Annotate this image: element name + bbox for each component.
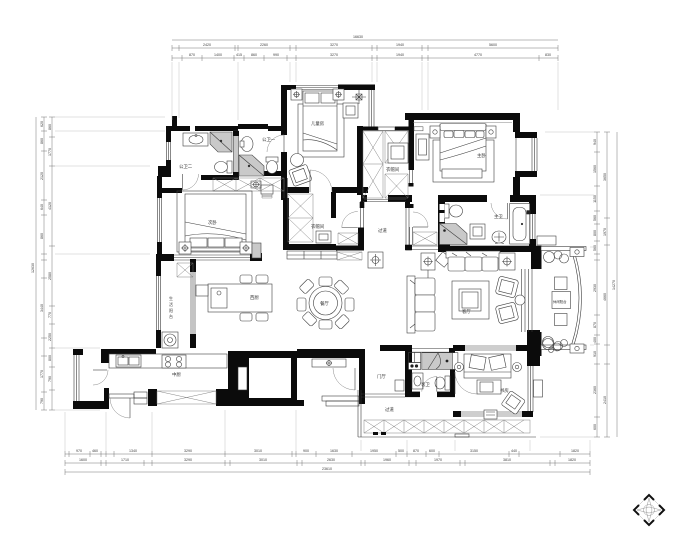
svg-text:860: 860 [40, 233, 44, 239]
svg-text:800: 800 [593, 230, 597, 236]
svg-text:1600: 1600 [79, 458, 87, 462]
svg-text:870: 870 [189, 53, 195, 57]
svg-text:1340: 1340 [129, 449, 137, 453]
svg-text:衣帽间: 衣帽间 [311, 223, 324, 230]
svg-text:990: 990 [273, 53, 279, 57]
svg-text:620: 620 [40, 121, 44, 127]
svg-text:23610: 23610 [322, 467, 332, 471]
svg-text:1970: 1970 [603, 228, 607, 236]
svg-text:830: 830 [545, 53, 551, 57]
svg-text:台: 台 [169, 313, 173, 319]
svg-text:3440: 3440 [40, 304, 44, 312]
svg-text:5600: 5600 [489, 43, 497, 47]
svg-text:1150: 1150 [593, 195, 597, 203]
svg-text:1400: 1400 [214, 53, 222, 57]
svg-text:阳: 阳 [169, 307, 173, 313]
svg-text:860: 860 [251, 53, 257, 57]
svg-text:书房: 书房 [500, 387, 509, 394]
svg-text:560: 560 [593, 245, 597, 251]
svg-text:800: 800 [48, 355, 52, 361]
svg-text:1960: 1960 [383, 458, 391, 462]
svg-text:客卫: 客卫 [421, 381, 430, 388]
svg-text:1950: 1950 [370, 449, 378, 453]
svg-text:910: 910 [593, 351, 597, 357]
svg-text:公卫二: 公卫二 [179, 164, 193, 169]
svg-text:门厅: 门厅 [377, 373, 386, 380]
svg-text:900: 900 [303, 449, 309, 453]
svg-text:2930: 2930 [593, 284, 597, 292]
svg-text:940: 940 [593, 139, 597, 145]
svg-text:1970: 1970 [434, 458, 442, 462]
svg-text:1940: 1940 [396, 53, 404, 57]
svg-text:600: 600 [429, 449, 435, 453]
svg-text:500: 500 [398, 449, 404, 453]
svg-text:3290: 3290 [184, 449, 192, 453]
svg-text:1820: 1820 [568, 458, 576, 462]
svg-text:1710: 1710 [121, 458, 129, 462]
svg-text:4120: 4120 [48, 202, 52, 210]
svg-text:活: 活 [169, 301, 173, 307]
svg-text:790: 790 [48, 376, 52, 382]
svg-text:公卫一: 公卫一 [262, 137, 276, 142]
svg-text:860: 860 [40, 138, 44, 144]
svg-text:客厅: 客厅 [462, 308, 471, 315]
svg-text:休闲阳台: 休闲阳台 [553, 299, 567, 304]
svg-text:生: 生 [169, 295, 173, 301]
svg-text:2630: 2630 [327, 458, 335, 462]
svg-text:中厨: 中厨 [172, 371, 181, 378]
svg-text:1630: 1630 [330, 449, 338, 453]
svg-text:460: 460 [92, 449, 98, 453]
svg-text:儿童房: 儿童房 [311, 120, 325, 127]
svg-text:1820: 1820 [571, 449, 579, 453]
svg-text:860: 860 [48, 124, 52, 130]
svg-text:2420: 2420 [203, 43, 211, 47]
svg-text:870: 870 [593, 322, 597, 328]
svg-text:1770: 1770 [40, 370, 44, 378]
svg-text:2580: 2580 [48, 272, 52, 280]
svg-text:3010: 3010 [259, 458, 267, 462]
svg-text:560: 560 [593, 215, 597, 221]
svg-text:2260: 2260 [260, 43, 268, 47]
svg-text:415: 415 [236, 53, 242, 57]
svg-text:770: 770 [48, 312, 52, 318]
svg-text:次卧: 次卧 [208, 219, 217, 226]
svg-text:主卧: 主卧 [477, 152, 486, 159]
svg-text:3150: 3150 [470, 449, 478, 453]
svg-text:870: 870 [413, 449, 419, 453]
svg-text:4770: 4770 [474, 53, 482, 57]
svg-text:过道: 过道 [385, 406, 394, 413]
svg-text:3650: 3650 [603, 173, 607, 181]
svg-text:过道: 过道 [378, 227, 387, 234]
svg-text:970: 970 [76, 449, 82, 453]
svg-text:2120: 2120 [40, 172, 44, 180]
svg-text:3270: 3270 [330, 53, 338, 57]
svg-text:16630: 16630 [353, 35, 363, 39]
svg-text:1940: 1940 [396, 43, 404, 47]
svg-text:3010: 3010 [254, 449, 262, 453]
svg-text:440: 440 [511, 449, 517, 453]
svg-text:1560: 1560 [593, 165, 597, 173]
svg-text:2360: 2360 [593, 386, 597, 394]
svg-text:2250: 2250 [48, 333, 52, 341]
svg-text:1770: 1770 [48, 148, 52, 156]
svg-text:3290: 3290 [184, 458, 192, 462]
svg-text:4660: 4660 [603, 293, 607, 301]
svg-text:790: 790 [40, 398, 44, 404]
svg-text:600: 600 [593, 424, 597, 430]
svg-text:3810: 3810 [503, 458, 511, 462]
svg-text:主卫: 主卫 [494, 213, 503, 219]
svg-text:12630: 12630 [31, 263, 35, 273]
svg-text:衣帽间: 衣帽间 [386, 166, 399, 173]
svg-text:餐厅: 餐厅 [320, 300, 329, 307]
svg-text:2410: 2410 [603, 396, 607, 404]
svg-text:640: 640 [40, 204, 44, 210]
svg-text:400: 400 [593, 337, 597, 343]
svg-text:14270: 14270 [612, 280, 616, 290]
svg-text:3270: 3270 [330, 43, 338, 47]
